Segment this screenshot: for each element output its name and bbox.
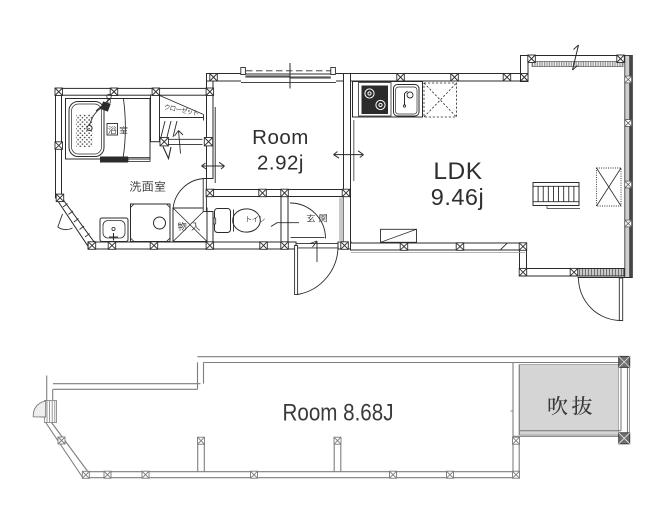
svg-text:Room: Room (252, 126, 309, 149)
svg-text:2.92j: 2.92j (257, 152, 304, 175)
svg-text:LDK: LDK (433, 158, 482, 185)
svg-text:9.46j: 9.46j (431, 184, 484, 210)
svg-text:Room 8.68J: Room 8.68J (283, 400, 394, 427)
